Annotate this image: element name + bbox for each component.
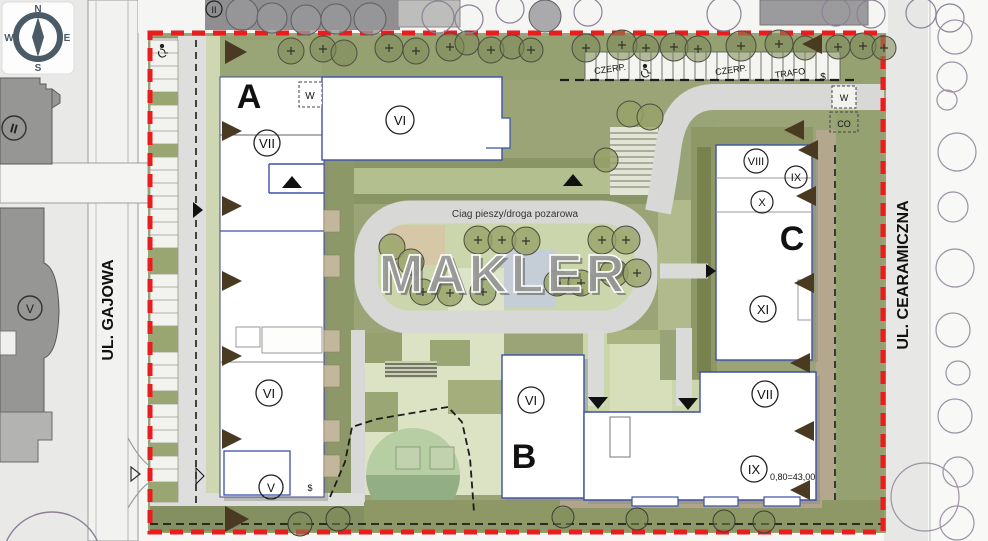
svg-text:VIII: VIII bbox=[748, 156, 765, 168]
svg-text:N: N bbox=[34, 4, 41, 15]
svg-text:XI: XI bbox=[757, 302, 769, 317]
svg-text:VII: VII bbox=[259, 136, 275, 151]
svg-text:W: W bbox=[4, 33, 14, 44]
svg-text:0,80=43,00: 0,80=43,00 bbox=[770, 472, 815, 482]
svg-text:X: X bbox=[758, 197, 766, 209]
svg-text:A: A bbox=[237, 78, 262, 116]
svg-text:E: E bbox=[64, 33, 71, 44]
svg-text:$: $ bbox=[820, 72, 826, 83]
svg-text:W: W bbox=[305, 91, 315, 102]
svg-text:IX: IX bbox=[791, 172, 802, 184]
svg-text:VII: VII bbox=[757, 387, 773, 402]
svg-text:V: V bbox=[26, 302, 34, 316]
svg-text:VI: VI bbox=[263, 386, 275, 401]
svg-text:IX: IX bbox=[748, 462, 761, 477]
svg-text:II: II bbox=[211, 5, 216, 15]
svg-text:C: C bbox=[780, 220, 805, 258]
svg-text:S: S bbox=[35, 63, 42, 74]
svg-text:UL. GAJOWA: UL. GAJOWA bbox=[100, 259, 117, 361]
svg-text:VI: VI bbox=[525, 393, 537, 408]
svg-text:W: W bbox=[840, 93, 849, 103]
svg-text:Ciag pieszy/droga pozarowa: Ciag pieszy/droga pozarowa bbox=[452, 209, 579, 220]
svg-text:VI: VI bbox=[394, 113, 406, 128]
svg-text:B: B bbox=[512, 438, 537, 476]
svg-text:MAKLER: MAKLER bbox=[379, 244, 628, 304]
svg-text:V: V bbox=[267, 481, 275, 495]
svg-text:$: $ bbox=[307, 483, 312, 493]
svg-text:CO: CO bbox=[837, 119, 851, 129]
svg-text:UL. CEARAMICZNA: UL. CEARAMICZNA bbox=[895, 200, 912, 350]
